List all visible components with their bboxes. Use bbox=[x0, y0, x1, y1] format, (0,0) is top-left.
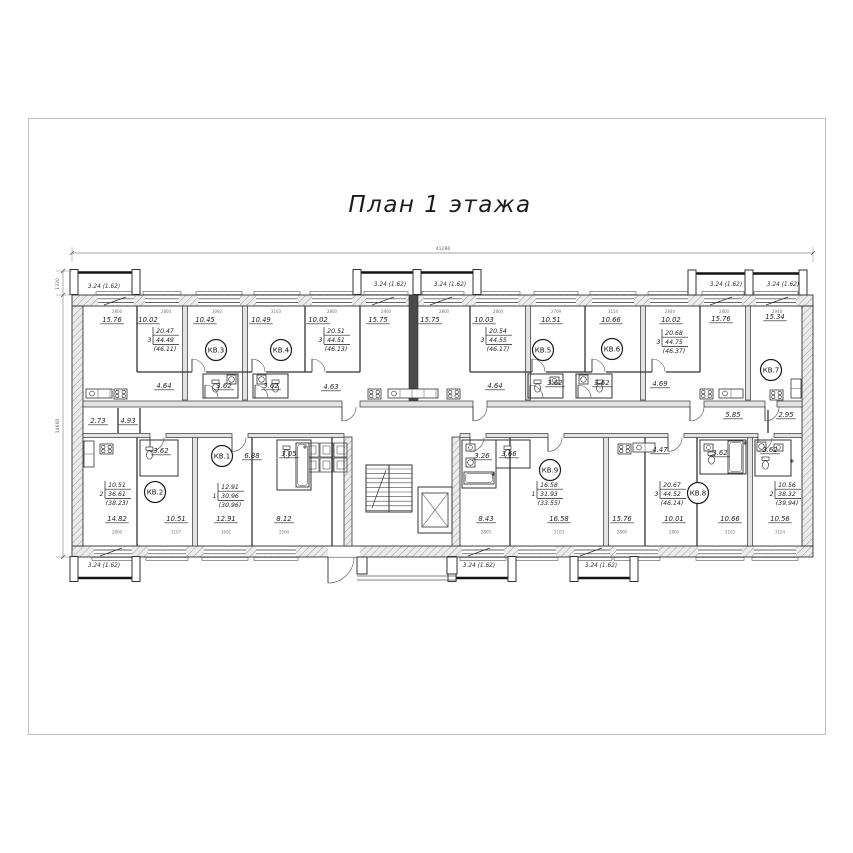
dimension-segment-bottom: 2800 bbox=[112, 530, 123, 535]
porch-column bbox=[447, 557, 457, 574]
room-area-label: 3.62 bbox=[547, 379, 562, 387]
corridor-wall bbox=[460, 434, 470, 438]
apartment-total-area: 44.49 bbox=[156, 337, 174, 344]
apartment-rooms-count: 3 bbox=[655, 491, 659, 498]
corridor-wall bbox=[564, 434, 668, 438]
window-sill bbox=[196, 292, 242, 295]
dimension-segment-bottom: 2800 bbox=[617, 530, 628, 535]
room-area-label: 15.75 bbox=[420, 316, 439, 324]
bathtub-icon bbox=[728, 441, 743, 473]
balcony-post bbox=[473, 270, 481, 295]
corridor-wall bbox=[166, 434, 232, 438]
stove-icon bbox=[114, 389, 127, 399]
apartment-total-area: 31.93 bbox=[540, 491, 558, 498]
room-area-label: 10.02 bbox=[661, 316, 680, 324]
apartment-area-with-balcony: (46.17) bbox=[487, 346, 510, 353]
apartment-number-label: КВ.4 bbox=[273, 346, 290, 354]
door-arc bbox=[592, 359, 605, 372]
apartment-total-area: 44.52 bbox=[663, 491, 681, 498]
dimension-segment-bottom: 2504 bbox=[279, 530, 290, 535]
door-arc bbox=[312, 359, 325, 372]
apartment-living-area: 10.56 bbox=[778, 482, 796, 489]
dimension-total-top: 41286 bbox=[436, 246, 451, 252]
apartment-living-area: 10.51 bbox=[108, 482, 126, 489]
window bbox=[204, 547, 246, 556]
bathroom-wall bbox=[140, 440, 178, 476]
apartment-living-area: 16.58 bbox=[540, 482, 558, 489]
apartment-boundary-wall bbox=[604, 437, 609, 546]
apartment-number-label: КВ.7 bbox=[763, 366, 779, 374]
toilet-tank bbox=[283, 446, 290, 449]
window-sill bbox=[696, 557, 744, 560]
window bbox=[312, 296, 352, 305]
room-area-label: 12.91 bbox=[216, 515, 235, 523]
counter-icon bbox=[388, 389, 438, 398]
wall-left bbox=[72, 306, 83, 546]
apartment-total-area: 30.96 bbox=[221, 493, 239, 500]
room-area-label: 15.76 bbox=[711, 315, 731, 323]
balcony-post bbox=[70, 270, 78, 295]
balcony-post bbox=[508, 557, 516, 582]
toilet-tank bbox=[504, 446, 511, 449]
balcony-area-label: 3.24 (1.62) bbox=[585, 563, 617, 569]
apartment-rooms-count: 3 bbox=[148, 337, 152, 344]
window bbox=[148, 547, 186, 556]
window bbox=[592, 296, 634, 305]
room-area-label: 10.51 bbox=[541, 316, 560, 324]
apartment-area-with-balcony: (38.23) bbox=[106, 500, 129, 507]
window-sill bbox=[752, 557, 798, 560]
window-sill bbox=[516, 557, 558, 560]
stove-icon bbox=[618, 444, 631, 454]
page-title: План 1 этажа bbox=[348, 192, 531, 218]
apartment-rooms-count: 2 bbox=[100, 491, 104, 498]
apartment-number-label: КВ.9 bbox=[542, 466, 558, 474]
bathtub-icon bbox=[296, 443, 309, 487]
lobby-unit-inner bbox=[309, 461, 316, 469]
stove-icon bbox=[100, 444, 113, 454]
room-area-label: 4.64 bbox=[156, 382, 171, 390]
door-arc bbox=[578, 385, 591, 398]
window bbox=[476, 296, 518, 305]
apartment-number-label: КВ.5 bbox=[535, 346, 551, 354]
window bbox=[366, 296, 406, 305]
balcony-area-label: 3.24 (1.62) bbox=[463, 563, 495, 569]
window bbox=[462, 547, 504, 556]
dimension-segment-top: 2709 bbox=[551, 309, 562, 314]
room-area-label: 3.62 bbox=[263, 382, 278, 390]
balcony-post bbox=[570, 557, 578, 582]
wall-right bbox=[802, 306, 813, 546]
balcony-post bbox=[70, 557, 78, 582]
balcony-area-label: 3.24 (1.62) bbox=[88, 284, 120, 290]
balcony-post bbox=[799, 270, 807, 295]
lobby-unit-inner bbox=[337, 461, 344, 469]
apartment-living-area: 12.91 bbox=[221, 484, 239, 491]
apartment-number-label: КВ.2 bbox=[147, 488, 163, 496]
lobby-unit-inner bbox=[323, 461, 330, 469]
room-area-label: 10.02 bbox=[138, 316, 157, 324]
dimension-segment-top: 2800 bbox=[327, 309, 338, 314]
dimension-segment-bottom: 3107 bbox=[171, 530, 182, 535]
balcony-post bbox=[745, 270, 753, 295]
window-sill bbox=[648, 292, 690, 295]
apartment-living-area: 20.51 bbox=[327, 328, 345, 335]
corridor-wall bbox=[774, 434, 802, 438]
stove-icon bbox=[770, 390, 783, 400]
lobby-unit-inner bbox=[323, 446, 330, 454]
balcony-area-label: 3.24 (1.62) bbox=[434, 282, 466, 288]
dimension-segment-bottom: 2800 bbox=[669, 530, 680, 535]
door-arc bbox=[252, 359, 265, 372]
door-arc bbox=[530, 385, 543, 398]
stove-icon bbox=[368, 389, 381, 399]
window bbox=[256, 296, 298, 305]
door-arc bbox=[652, 359, 665, 372]
room-area-label: 15.75 bbox=[368, 316, 387, 324]
room-area-label: 15.76 bbox=[102, 316, 122, 324]
apartment-living-area: 20.54 bbox=[489, 328, 507, 335]
apartment-total-area: 44.55 bbox=[489, 337, 507, 344]
dimension-segment-top: 2800 bbox=[112, 309, 123, 314]
room-area-label: 2.73 bbox=[90, 417, 105, 425]
window bbox=[754, 547, 796, 556]
window-sill bbox=[754, 292, 798, 295]
door-arc bbox=[232, 438, 246, 452]
window-sill bbox=[590, 292, 636, 295]
room-area-label: 10.56 bbox=[770, 515, 790, 523]
toilet-tank bbox=[534, 380, 541, 383]
core-wall bbox=[344, 437, 352, 546]
apartment-area-with-balcony: (46.11) bbox=[154, 346, 177, 353]
dimension-segment-top: 2800 bbox=[719, 309, 730, 314]
window-sill bbox=[92, 557, 134, 560]
dimension-segment-top: 3103 bbox=[271, 309, 282, 314]
apartment-area-with-balcony: (39.94) bbox=[776, 500, 799, 507]
apartment-total-area: 38.32 bbox=[778, 491, 796, 498]
counter-icon bbox=[86, 389, 112, 398]
window bbox=[650, 296, 688, 305]
dimension-segment-bottom: 3103 bbox=[725, 530, 736, 535]
lobby-unit bbox=[320, 443, 333, 457]
room-area-label: 3.62 bbox=[712, 449, 727, 457]
room-area-label: 16.58 bbox=[549, 515, 569, 523]
room-area-label: 4.63 bbox=[323, 383, 338, 391]
window-sill bbox=[254, 292, 300, 295]
apartment-area-with-balcony: (46.37) bbox=[663, 348, 686, 355]
window bbox=[616, 547, 658, 556]
porch-column bbox=[357, 557, 367, 574]
window bbox=[698, 547, 742, 556]
apartment-boundary-wall bbox=[243, 306, 248, 400]
room-area-label: 10.66 bbox=[601, 316, 621, 324]
window-sill bbox=[364, 292, 408, 295]
apartment-area-with-balcony: (46.14) bbox=[661, 500, 684, 507]
apartment-boundary-wall bbox=[193, 437, 198, 546]
toilet-tank bbox=[762, 457, 769, 460]
apartment-rooms-count: 1 bbox=[213, 493, 217, 500]
room-area-label: 6.88 bbox=[244, 452, 260, 460]
wall-shaft bbox=[409, 295, 418, 402]
room-area-label: 10.51 bbox=[166, 515, 185, 523]
room-area-label: 3.66 bbox=[501, 450, 517, 458]
corridor-wall bbox=[83, 434, 150, 438]
room-area-label: 3.62 bbox=[216, 382, 231, 390]
door-arc bbox=[690, 407, 704, 421]
balcony-area-label: 3.24 (1.62) bbox=[374, 282, 406, 288]
toilet-bowl bbox=[763, 461, 769, 469]
window-sill bbox=[310, 292, 354, 295]
room-area-label: 5.85 bbox=[725, 411, 740, 419]
apartment-living-area: 20.47 bbox=[156, 328, 174, 335]
apartment-boundary-wall bbox=[746, 306, 751, 400]
apartment-rooms-count: 3 bbox=[481, 337, 485, 344]
lobby-unit bbox=[320, 458, 333, 472]
balcony-post bbox=[630, 557, 638, 582]
window-sill bbox=[143, 292, 181, 295]
balcony-post bbox=[413, 270, 421, 295]
apartment-rooms-count: 3 bbox=[657, 339, 661, 346]
balcony-area-label: 3.24 (1.62) bbox=[710, 282, 742, 288]
corridor-wall bbox=[248, 434, 344, 438]
interior-main-wall bbox=[83, 401, 342, 407]
apartment-boundary-wall bbox=[641, 306, 646, 400]
dimension-segment-top: 2800 bbox=[439, 309, 450, 314]
apartment-rooms-count: 1 bbox=[532, 491, 536, 498]
room-area-label: 10.02 bbox=[308, 316, 327, 324]
apartment-area-with-balcony: (33.55) bbox=[538, 500, 561, 507]
room-area-label: 10.66 bbox=[720, 515, 740, 523]
stove-icon bbox=[700, 389, 713, 399]
window bbox=[145, 296, 179, 305]
lobby-unit-inner bbox=[337, 446, 344, 454]
dimension-segment-top: 2800 bbox=[493, 309, 504, 314]
entrance-opening bbox=[328, 547, 360, 557]
balcony-post bbox=[132, 557, 140, 582]
window bbox=[256, 547, 296, 556]
toilet-tank bbox=[146, 447, 153, 450]
window bbox=[536, 296, 576, 305]
dimension-left-total: 14660 bbox=[55, 419, 61, 434]
room-area-label: 14.82 bbox=[107, 515, 126, 523]
balcony-post bbox=[688, 270, 696, 295]
dimension-segment-top: 2800 bbox=[161, 309, 172, 314]
core-wall bbox=[452, 437, 460, 546]
toilet-bowl bbox=[535, 384, 541, 392]
apartment-number-label: КВ.6 bbox=[604, 345, 621, 353]
entrance-door-arc bbox=[328, 557, 354, 583]
apartment-area-with-balcony: (46.13) bbox=[325, 346, 348, 353]
room-area-label: 4.47 bbox=[652, 446, 668, 454]
door-arc bbox=[473, 407, 487, 421]
apartment-area-with-balcony: (30.96) bbox=[219, 502, 242, 509]
room-area-label: 10.03 bbox=[474, 316, 493, 324]
window-sill bbox=[96, 292, 136, 295]
dimension-segment-top: 2840 bbox=[665, 309, 676, 314]
window-sill bbox=[254, 557, 298, 560]
balcony-post bbox=[353, 270, 361, 295]
lobby-unit-inner bbox=[309, 446, 316, 454]
door-arc bbox=[668, 438, 682, 452]
room-area-label: 8.43 bbox=[478, 515, 493, 523]
room-area-label: 3.62 bbox=[762, 446, 777, 454]
apartment-living-area: 20.68 bbox=[665, 330, 683, 337]
window bbox=[518, 547, 556, 556]
apartment-total-area: 44.75 bbox=[665, 339, 683, 346]
interior-main-wall bbox=[487, 401, 690, 407]
apartment-living-area: 20.67 bbox=[663, 482, 681, 489]
sink-icon bbox=[466, 444, 475, 451]
balcony-area-label: 3.24 (1.62) bbox=[88, 563, 120, 569]
apartment-rooms-count: 2 bbox=[770, 491, 774, 498]
balcony-area-label: 3.24 (1.62) bbox=[767, 282, 799, 288]
apartment-total-area: 36.61 bbox=[108, 491, 126, 498]
washer-icon bbox=[579, 375, 588, 384]
apartment-number-label: КВ.8 bbox=[690, 489, 706, 497]
dimension-segment-top: 3154 bbox=[608, 309, 619, 314]
window-sill bbox=[460, 557, 506, 560]
interior-main-wall bbox=[704, 401, 765, 407]
floor-plan-canvas: План 1 этажа 412861330146602800280030923… bbox=[0, 0, 853, 853]
corridor-wall bbox=[684, 434, 758, 438]
room-area-label: 15.76 bbox=[612, 515, 632, 523]
stove-icon bbox=[447, 389, 460, 399]
dimension-segment-top: 3092 bbox=[212, 309, 223, 314]
room-area-label: 8.12 bbox=[276, 515, 291, 523]
room-area-label: 3.62 bbox=[594, 379, 609, 387]
room-area-label: 3.26 bbox=[474, 452, 490, 460]
apartment-total-area: 44.51 bbox=[327, 337, 345, 344]
apartment-boundary-wall bbox=[748, 437, 753, 546]
dimension-segment-bottom: 3601 bbox=[221, 530, 232, 535]
corridor-wall bbox=[486, 434, 548, 438]
window bbox=[198, 296, 240, 305]
floor-plan-page: План 1 этажа 412861330146602800280030923… bbox=[0, 0, 853, 853]
interior-main-wall bbox=[777, 401, 802, 407]
dimension-segment-bottom: 2805 bbox=[481, 530, 492, 535]
window-sill bbox=[146, 557, 188, 560]
window-sill bbox=[702, 292, 744, 295]
dimension-segment-bottom: 3124 bbox=[775, 530, 786, 535]
room-area-label: 10.45 bbox=[195, 316, 214, 324]
interior-main-wall bbox=[360, 401, 473, 407]
room-area-label: 10.49 bbox=[251, 316, 270, 324]
window-sill bbox=[422, 292, 464, 295]
window-sill bbox=[534, 292, 578, 295]
room-area-label: 15.34 bbox=[765, 313, 784, 321]
apartment-number-label: КВ.3 bbox=[208, 346, 224, 354]
room-area-label: 3.05 bbox=[281, 450, 296, 458]
door-arc bbox=[548, 438, 562, 452]
room-area-label: 4.64 bbox=[487, 382, 502, 390]
window bbox=[756, 296, 796, 305]
apartment-boundary-wall bbox=[183, 306, 188, 400]
door-arc bbox=[342, 407, 356, 421]
apartment-number-label: КВ.1 bbox=[214, 452, 230, 460]
apartment-rooms-count: 3 bbox=[319, 337, 323, 344]
room-area-label: 2.95 bbox=[778, 411, 793, 419]
stair-arrow bbox=[372, 470, 386, 508]
door-arc bbox=[192, 359, 205, 372]
window-sill bbox=[202, 557, 248, 560]
room-area-label: 4.93 bbox=[120, 417, 135, 425]
dimension-segment-bottom: 3103 bbox=[554, 530, 565, 535]
dimension-left-balcony: 1330 bbox=[55, 278, 61, 290]
balcony-post bbox=[132, 270, 140, 295]
dimension-segment-top: 2900 bbox=[381, 309, 392, 314]
room-area-label: 3.62 bbox=[153, 447, 168, 455]
room-area-label: 4.69 bbox=[652, 380, 667, 388]
room-area-label: 10.01 bbox=[664, 515, 683, 523]
